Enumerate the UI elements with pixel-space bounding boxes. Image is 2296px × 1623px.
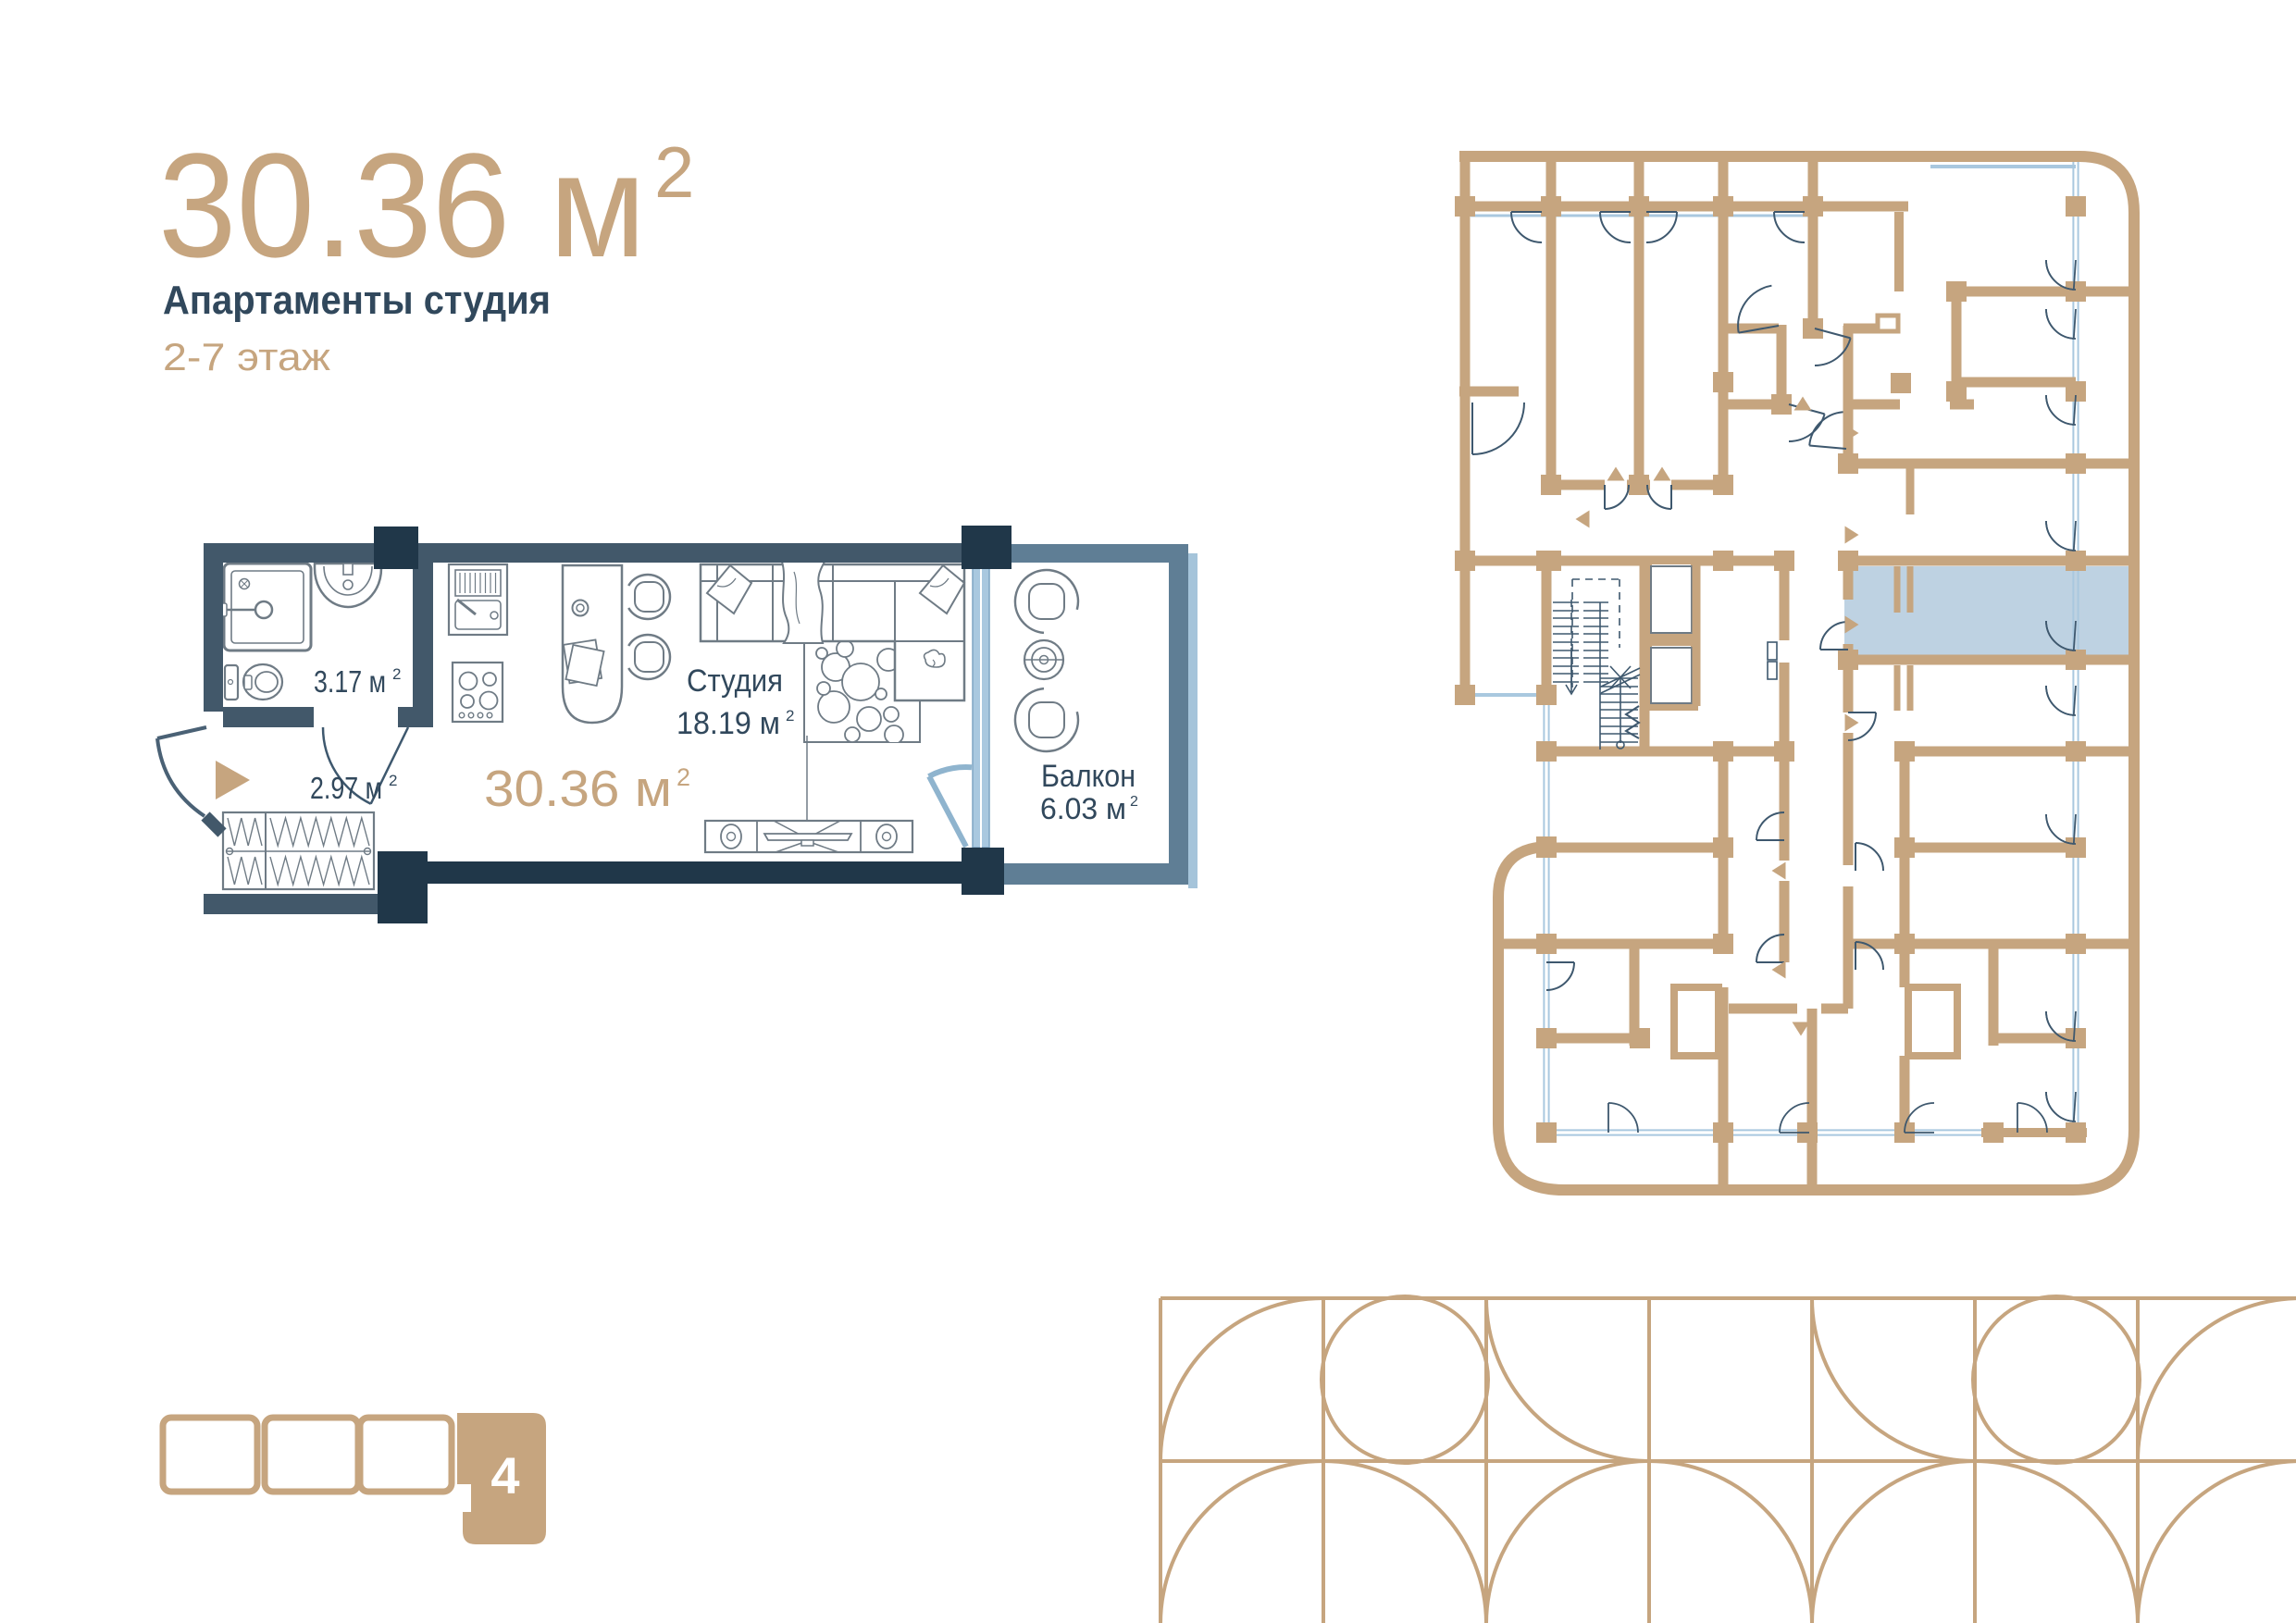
svg-text:Балкон: Балкон — [1041, 759, 1136, 794]
svg-text:30.36 м: 30.36 м — [158, 122, 646, 288]
svg-text:Апартаменты студия: Апартаменты студия — [163, 278, 551, 323]
svg-text:2: 2 — [654, 131, 694, 213]
svg-text:2.97 м: 2.97 м — [310, 771, 382, 805]
svg-text:2: 2 — [786, 707, 794, 725]
svg-text:4: 4 — [490, 1446, 519, 1505]
svg-text:2: 2 — [389, 772, 397, 789]
svg-text:3.17 м: 3.17 м — [314, 664, 386, 699]
svg-text:Студия: Студия — [687, 663, 783, 699]
svg-text:2: 2 — [1130, 794, 1138, 810]
svg-text:30.36 м: 30.36 м — [484, 760, 672, 817]
svg-text:2: 2 — [676, 763, 690, 791]
svg-text:18.19 м: 18.19 м — [676, 706, 780, 741]
svg-text:6.03 м: 6.03 м — [1040, 792, 1126, 825]
svg-text:2-7 этаж: 2-7 этаж — [163, 335, 330, 378]
svg-text:2: 2 — [392, 665, 401, 683]
